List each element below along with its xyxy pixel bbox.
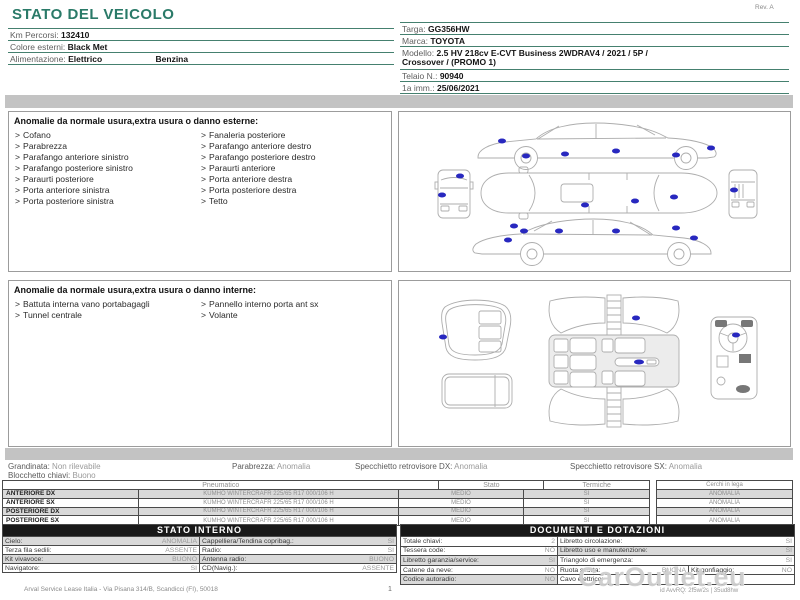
bullet-marker: > — [201, 152, 206, 162]
cell-label: Cappelliera/Tendina copribag.: — [202, 538, 294, 545]
cell-label: Libretto circolazione: — [560, 538, 622, 545]
field-label: Marca: — [402, 36, 428, 46]
field-value: 132410 — [61, 30, 89, 40]
tire-stato: MEDIO — [399, 490, 524, 499]
mirror-dx-status: Specchietto retrovisore DX: Anomalia — [355, 462, 488, 471]
status-value: Anomalia — [454, 462, 487, 471]
vehicle-status-report: STATO DEL VEICOLO Rev. A Km Percorsi: 13… — [0, 0, 800, 600]
damage-marker — [522, 154, 530, 159]
tire-table: Pneumatico Stato Termiche ANTERIORE DX K… — [2, 480, 650, 526]
page-title: STATO DEL VEICOLO — [12, 6, 174, 23]
damage-marker — [438, 193, 446, 198]
cell-value: SI — [786, 538, 792, 545]
field-value: TOYOTA — [430, 36, 465, 46]
vehicle-summary-right: Targa: GG356HW Marca: TOYOTA Modello: 2.… — [400, 22, 789, 94]
section-heading: Anomalie da normale usura,extra usura o … — [9, 281, 391, 297]
anomaly-item: >Tunnel centrale — [15, 310, 201, 321]
bullet-marker: > — [15, 310, 20, 320]
status-value: Buono — [73, 471, 96, 480]
tire-description: KUMHO WINTERCRAFR 225/65 R17 000/106 H — [139, 508, 399, 517]
cell-value: ANOMALIA — [162, 538, 197, 545]
field-label: Modello: — [402, 48, 434, 58]
bullet-marker: > — [201, 174, 206, 184]
status-value: Non rilevabile — [52, 462, 100, 471]
anomaly-label: Parafango anteriore destro — [209, 141, 311, 151]
cell-value: SI — [786, 557, 792, 564]
status-value: Anomalia — [277, 462, 310, 471]
cell-value: SI — [388, 547, 394, 554]
anomaly-item: >Parafango anteriore sinistro — [15, 152, 201, 163]
cell-label: Tessera code: — [403, 547, 445, 554]
exterior-diagram — [398, 111, 791, 272]
km-row: Km Percorsi: 132410 — [8, 28, 394, 41]
cell-label: CD(Navig.): — [202, 565, 238, 572]
alloy-value: ANOMALIA — [657, 499, 792, 508]
bullet-marker: > — [201, 196, 206, 206]
cell-label: Catene da neve: — [403, 567, 453, 574]
field-value: Elettrico — [68, 55, 153, 65]
status-label: Specchietto retrovisore SX: — [570, 462, 667, 471]
damage-marker — [555, 229, 563, 234]
trunk-view — [442, 300, 511, 360]
damage-marker — [561, 152, 569, 157]
damage-marker — [581, 203, 589, 208]
section-heading: Anomalie da normale usura,extra usura o … — [9, 112, 391, 128]
bullet-marker: > — [201, 185, 206, 195]
bullet-marker: > — [15, 196, 20, 206]
alloy-header: Cerchi in lega — [657, 481, 792, 490]
anomaly-item: >Battuta interna vano portabagagli — [15, 299, 201, 310]
interior-anomalies-col1: >Battuta interna vano portabagagli >Tunn… — [15, 299, 201, 321]
color-row: Colore esterni: Black Met — [8, 41, 394, 53]
table-row: Cielo:ANOMALIA Cappelliera/Tendina copri… — [3, 536, 396, 545]
table-title: STATO INTERNO — [3, 525, 396, 536]
bullet-marker: > — [201, 141, 206, 151]
interior-anomalies-section: Anomalie da normale usura,extra usura o … — [8, 280, 392, 447]
anomaly-item: >Porta posteriore destra — [201, 185, 387, 196]
damage-marker — [612, 229, 620, 234]
field-label: Colore esterni: — [10, 42, 65, 52]
anomaly-label: Parafango posteriore destro — [209, 152, 316, 162]
cell-label: Antenna radio: — [202, 556, 246, 563]
anomaly-label: Parafango posteriore sinistro — [23, 163, 133, 173]
bullet-marker: > — [15, 130, 20, 140]
damage-marker — [670, 195, 678, 200]
damage-marker — [456, 174, 464, 179]
table-row: Kit vivavoce:BUONO Antenna radio:BUONO — [3, 554, 396, 563]
anomaly-item: >Paraurti posteriore — [15, 174, 201, 185]
alloy-value: ANOMALIA — [657, 490, 792, 499]
damage-marker — [707, 146, 715, 151]
col-header-stato: Stato — [439, 481, 544, 490]
alloy-row: ANOMALIA — [657, 490, 792, 499]
cell-value: SI — [388, 538, 394, 545]
damage-marker — [672, 226, 680, 231]
anomaly-label: Porta posteriore destra — [209, 185, 296, 195]
registration-row: 1a imm.: 25/06/2021 — [400, 82, 789, 94]
anomaly-label: Porta posteriore sinistra — [23, 196, 114, 206]
bullet-marker: > — [15, 152, 20, 162]
damage-marker — [632, 316, 640, 321]
alloy-row: ANOMALIA — [657, 508, 792, 517]
anomaly-label: Porta anteriore destra — [209, 174, 292, 184]
damage-marker — [690, 236, 698, 241]
table-title: DOCUMENTI E DOTAZIONI — [401, 525, 794, 536]
grandinata-status: Grandinata: Non rilevabile — [8, 462, 101, 471]
model-row: Modello: 2.5 HV 218cv E-CVT Business 2WD… — [400, 47, 789, 70]
anomaly-item: >Cofano — [15, 130, 201, 141]
alloy-wheels-table: Cerchi in lega ANOMALIA ANOMALIA ANOMALI… — [656, 480, 793, 526]
col-header-cerchi: Cerchi in lega — [657, 481, 792, 490]
bullet-marker: > — [201, 299, 206, 309]
cell-label: Radio: — [202, 547, 222, 554]
tire-description: KUMHO WINTERCRAFR 225/65 R17 000/106 H — [139, 490, 399, 499]
bullet-marker: > — [201, 163, 206, 173]
anomaly-label: Paraurti anteriore — [209, 163, 275, 173]
car-side-top-view — [478, 123, 716, 170]
field-label: Targa: — [402, 24, 426, 34]
cell-label: Cielo: — [5, 538, 22, 545]
cell-label: Libretto uso e manutenzione: — [560, 547, 648, 554]
interior-diagram-svg — [399, 281, 790, 446]
bullet-marker: > — [201, 130, 206, 140]
tire-row: ANTERIORE DX KUMHO WINTERCRAFR 225/65 R1… — [3, 490, 649, 499]
blocchetto-status: Blocchetto chiavi: Buono — [8, 471, 96, 480]
anomaly-item: >Parafango posteriore destro — [201, 152, 387, 163]
anomaly-item: >Porta anteriore sinistra — [15, 185, 201, 196]
page-number: 1 — [388, 586, 392, 593]
fuel-row: Alimentazione: Elettrico Benzina — [8, 53, 394, 65]
damage-marker — [631, 199, 639, 204]
alloy-value: ANOMALIA — [657, 508, 792, 517]
tire-position: ANTERIORE DX — [3, 490, 139, 499]
mirror-sx-status: Specchietto retrovisore SX: Anomalia — [570, 462, 702, 471]
anomaly-label: Paraurti posteriore — [23, 174, 94, 184]
tire-table-header: Pneumatico Stato Termiche — [3, 481, 649, 490]
cell-value: ASSENTE — [165, 547, 197, 554]
alloy-row: ANOMALIA — [657, 499, 792, 508]
damage-marker — [504, 238, 512, 243]
field-label: 1a imm.: — [402, 83, 435, 93]
damage-marker — [439, 335, 447, 340]
field-label: Km Percorsi: — [10, 30, 59, 40]
anomaly-label: Fanaleria posteriore — [209, 130, 285, 140]
brand-row: Marca: TOYOTA — [400, 35, 789, 47]
anomaly-label: Tetto — [209, 196, 228, 206]
damage-marker — [498, 139, 506, 144]
tire-termiche: SI — [524, 508, 649, 517]
anomaly-label: Volante — [209, 310, 238, 320]
anomaly-label: Parafango anteriore sinistro — [23, 152, 129, 162]
anomaly-label: Tunnel centrale — [23, 310, 82, 320]
tire-description: KUMHO WINTERCRAFR 225/65 R17 000/106 H — [139, 499, 399, 508]
car-rear-view — [729, 170, 757, 218]
field-label: Telaio N.: — [402, 71, 437, 81]
bullet-marker: > — [15, 185, 20, 195]
table-row: Terza fila sedili:ASSENTE Radio:SI — [3, 545, 396, 554]
anomaly-item: >Parafango posteriore sinistro — [15, 163, 201, 174]
cell-value: NO — [545, 567, 555, 574]
field-value: 90940 — [440, 71, 464, 81]
status-label: Specchietto retrovisore DX: — [355, 462, 452, 471]
tire-position: ANTERIORE SX — [3, 499, 139, 508]
cell-value: BUONO — [172, 556, 197, 563]
separator-band — [5, 448, 793, 460]
revision-label: Rev. A — [755, 4, 774, 11]
tire-stato: MEDIO — [399, 508, 524, 517]
field-value: 2.5 HV 218cv E-CVT Business 2WDRAV4 / 20… — [402, 48, 648, 68]
damage-marker — [612, 149, 620, 154]
anomaly-item: >Volante — [201, 310, 387, 321]
cell-label: Kit vivavoce: — [5, 556, 43, 563]
vehicle-summary-left: Km Percorsi: 132410 Colore esterni: Blac… — [8, 28, 394, 65]
bullet-marker: > — [15, 174, 20, 184]
bullet-marker: > — [201, 310, 206, 320]
dashboard-view — [711, 317, 757, 399]
cell-value: ASSENTE — [362, 565, 394, 572]
cell-value: NO — [545, 576, 555, 583]
anomaly-item: >Pannello interno porta ant sx — [201, 299, 387, 310]
anomaly-label: Battuta interna vano portabagagli — [23, 299, 150, 309]
anomaly-label: Parabrezza — [23, 141, 67, 151]
damage-marker — [520, 229, 528, 234]
anomaly-item: >Porta posteriore sinistra — [15, 196, 201, 207]
field-value-2: Benzina — [156, 54, 189, 64]
anomaly-item: >Paraurti anteriore — [201, 163, 387, 174]
exterior-anomalies-section: Anomalie da normale usura,extra usura o … — [8, 111, 392, 272]
anomaly-item: >Tetto — [201, 196, 387, 207]
company-footer: Arval Service Lease Italia - Via Pisana … — [24, 586, 218, 593]
bullet-marker: > — [15, 299, 20, 309]
car-plan-view — [481, 167, 717, 219]
cell-value: NO — [782, 567, 792, 574]
interior-diagram — [398, 280, 791, 447]
damage-marker — [730, 188, 738, 193]
exterior-anomalies-col2: >Fanaleria posteriore >Parafango anterio… — [201, 130, 387, 207]
cabin-view — [549, 295, 679, 427]
damage-marker — [510, 224, 518, 229]
tire-termiche: SI — [524, 490, 649, 499]
cell-label: Terza fila sedili: — [5, 547, 51, 554]
cell-value: SI — [786, 547, 792, 554]
cell-value: 2 — [551, 538, 555, 545]
tire-row: POSTERIORE DX KUMHO WINTERCRAFR 225/65 R… — [3, 508, 649, 517]
table-row: Navigatore:SI CD(Navig.):ASSENTE — [3, 563, 396, 572]
anomaly-label: Porta anteriore sinistra — [23, 185, 109, 195]
stato-interno-table: STATO INTERNO Cielo:ANOMALIA Cappelliera… — [2, 524, 397, 573]
rear-window-view — [442, 374, 512, 408]
field-label: Alimentazione: — [10, 54, 66, 64]
table-row: Totale chiavi:2 Libretto circolazione:SI — [401, 536, 794, 546]
damage-marker — [672, 153, 680, 158]
table-row: Tessera code:NO Libretto uso e manutenzi… — [401, 546, 794, 556]
separator-band — [5, 95, 793, 108]
field-value: 25/06/2021 — [437, 83, 480, 93]
col-header-termiche: Termiche — [544, 481, 649, 490]
anomaly-label: Pannello interno porta ant sx — [209, 299, 318, 309]
status-value: Anomalia — [669, 462, 702, 471]
parabrezza-status: Parabrezza: Anomalia — [232, 462, 310, 471]
bullet-marker: > — [15, 141, 20, 151]
field-value: GG356HW — [428, 24, 470, 34]
tire-stato: MEDIO — [399, 499, 524, 508]
cell-value: SI — [549, 557, 555, 564]
status-label: Blocchetto chiavi: — [8, 471, 70, 480]
anomaly-item: >Parafango anteriore destro — [201, 141, 387, 152]
cell-label: Libretto garanzia/service: — [403, 557, 479, 564]
anomaly-item: >Fanaleria posteriore — [201, 130, 387, 141]
cell-label: Navigatore: — [5, 565, 40, 572]
field-value: Black Met — [68, 42, 108, 52]
anomaly-item: >Parabrezza — [15, 141, 201, 152]
exterior-diagram-svg — [399, 112, 790, 271]
cell-value: NO — [545, 547, 555, 554]
exterior-anomalies-col1: >Cofano >Parabrezza >Parafango anteriore… — [15, 130, 201, 207]
chassis-row: Telaio N.: 90940 — [400, 70, 789, 82]
cell-value: BUONO — [369, 556, 394, 563]
status-label: Parabrezza: — [232, 462, 275, 471]
cell-label: Codice autoradio: — [403, 576, 456, 583]
tire-position: POSTERIORE DX — [3, 508, 139, 517]
status-label: Grandinata: — [8, 462, 50, 471]
anomaly-item: >Porta anteriore destra — [201, 174, 387, 185]
col-header-pneumatico: Pneumatico — [3, 481, 439, 490]
tire-termiche: SI — [524, 499, 649, 508]
damage-marker — [634, 360, 644, 365]
damage-marker — [732, 333, 740, 338]
tire-row: ANTERIORE SX KUMHO WINTERCRAFR 225/65 R1… — [3, 499, 649, 508]
anomaly-label: Cofano — [23, 130, 51, 140]
cell-value: SI — [191, 565, 197, 572]
interior-anomalies-col2: >Pannello interno porta ant sx >Volante — [201, 299, 387, 321]
plate-row: Targa: GG356HW — [400, 22, 789, 35]
reference-code: id AvvRQ: 2f5w/2s | 35ud8hw — [660, 588, 738, 594]
bullet-marker: > — [15, 163, 20, 173]
cell-label: Totale chiavi: — [403, 538, 442, 545]
